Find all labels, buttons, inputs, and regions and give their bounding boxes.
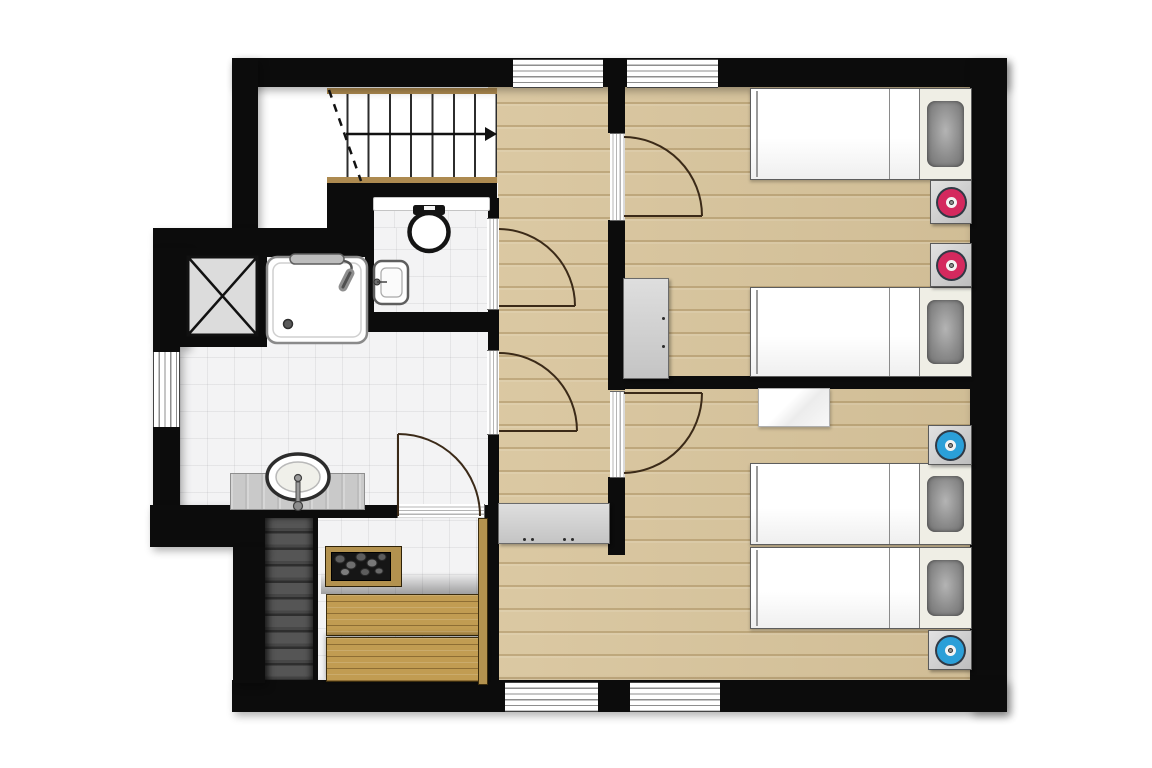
toilet-icon — [410, 205, 449, 251]
hand-basin-icon — [374, 261, 408, 304]
door-bedroom-north — [624, 137, 702, 216]
door-bedroom-south — [624, 393, 702, 473]
fixtures-layer — [0, 0, 1152, 768]
door-bathroom — [499, 353, 577, 431]
door-sauna-room — [398, 434, 480, 516]
stair-direction-arrow — [346, 127, 497, 141]
stair-cut-line — [329, 90, 361, 181]
floor-plan-canvas — [0, 0, 1152, 768]
vanity-sink-icon — [267, 454, 329, 511]
shower-icon — [267, 254, 367, 343]
washing-machine-icon — [188, 257, 257, 335]
door-wc — [499, 229, 575, 306]
sauna-stones-icon — [335, 553, 386, 576]
